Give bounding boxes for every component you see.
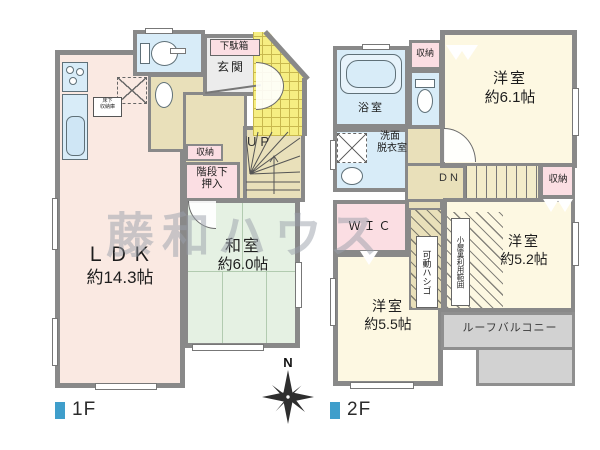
bath-label: 浴室 bbox=[358, 102, 384, 116]
stove-burner-icon bbox=[66, 66, 74, 74]
tatami-line bbox=[266, 272, 267, 343]
senmen-label: 洗面 bbox=[380, 131, 400, 144]
window bbox=[145, 28, 173, 34]
underfloor-storage-label: 収納庫 bbox=[100, 104, 115, 110]
floor-plan: 床下 収納庫 ＬＤＫ 約14.3帖 下駄箱 玄関 UP 収納 階段下 押入 bbox=[0, 0, 600, 450]
attic-label-box: 小屋裏利用範囲 bbox=[451, 218, 470, 306]
window bbox=[572, 222, 579, 266]
window bbox=[362, 44, 390, 50]
washing-machine-icon bbox=[337, 133, 367, 163]
room61-size-label: 約6.1帖 bbox=[485, 89, 536, 108]
watermark-text: 藤和ハウス bbox=[106, 196, 386, 266]
legend-2f-label: 2F bbox=[347, 399, 371, 421]
window bbox=[52, 198, 58, 250]
window bbox=[330, 278, 336, 326]
room52-size-label: 約5.2帖 bbox=[500, 251, 547, 269]
window bbox=[295, 262, 302, 308]
getabako-label: 下駄箱 bbox=[220, 41, 249, 53]
room61-name-label: 洋室 bbox=[493, 70, 527, 89]
toilet-bowl-icon bbox=[417, 89, 433, 113]
attic-label: 小屋裏利用範囲 bbox=[455, 236, 466, 289]
ladder-label-box: 可動ハシゴ bbox=[416, 236, 438, 308]
ladder-label: 可動ハシゴ bbox=[421, 250, 434, 295]
legend-1f: 1F bbox=[55, 399, 96, 421]
toilet-tank-icon bbox=[415, 79, 435, 88]
roof-balcony-label: ルーフバルコニー bbox=[462, 322, 557, 336]
window bbox=[192, 344, 264, 351]
roof-balcony bbox=[476, 347, 575, 386]
window bbox=[170, 48, 186, 54]
bathtub-inner-icon bbox=[346, 60, 396, 88]
legend-2f: 2F bbox=[330, 399, 371, 421]
under-stair-closet-label: 押入 bbox=[202, 178, 223, 191]
tatami-line bbox=[222, 272, 223, 343]
room55-name-label: 洋室 bbox=[372, 298, 404, 316]
kitchen-sink-icon bbox=[66, 116, 85, 156]
shuno-2f-left-label: 収納 bbox=[416, 48, 434, 59]
closet-door-icon bbox=[557, 199, 573, 212]
window bbox=[95, 383, 157, 390]
up-label: UP bbox=[247, 134, 273, 150]
window bbox=[572, 88, 579, 136]
porch-right-wall bbox=[302, 78, 307, 136]
senmen-label: 脱衣室 bbox=[377, 143, 407, 156]
compass-north-label: N bbox=[283, 355, 292, 370]
washbasin-icon bbox=[155, 82, 173, 108]
shuno-2f-right-label: 収納 bbox=[548, 174, 567, 186]
stairs-dn-area bbox=[463, 163, 541, 202]
room52-name-label: 洋室 bbox=[508, 233, 540, 251]
window bbox=[330, 140, 336, 170]
shuno-1f-label: 収納 bbox=[196, 147, 214, 158]
legend-1f-square bbox=[55, 402, 65, 419]
window bbox=[52, 318, 58, 366]
window bbox=[350, 382, 414, 389]
legend-2f-square bbox=[330, 402, 340, 419]
ldk-size-label: 約14.3帖 bbox=[86, 267, 153, 288]
toilet-tank-icon bbox=[140, 43, 150, 64]
legend-1f-label: 1F bbox=[72, 399, 96, 421]
closet-door-icon bbox=[458, 45, 478, 60]
room55-size-label: 約5.5帖 bbox=[364, 316, 411, 334]
underfloor-storage-box: 床下 収納庫 bbox=[93, 97, 122, 117]
genkan-label: 玄関 bbox=[217, 60, 245, 75]
stove-burner-icon bbox=[76, 68, 84, 76]
stove-burner-icon bbox=[69, 77, 77, 85]
compass-rose-icon: N bbox=[256, 354, 320, 426]
washbasin-icon bbox=[341, 167, 363, 185]
dn-label: DN bbox=[439, 172, 461, 186]
